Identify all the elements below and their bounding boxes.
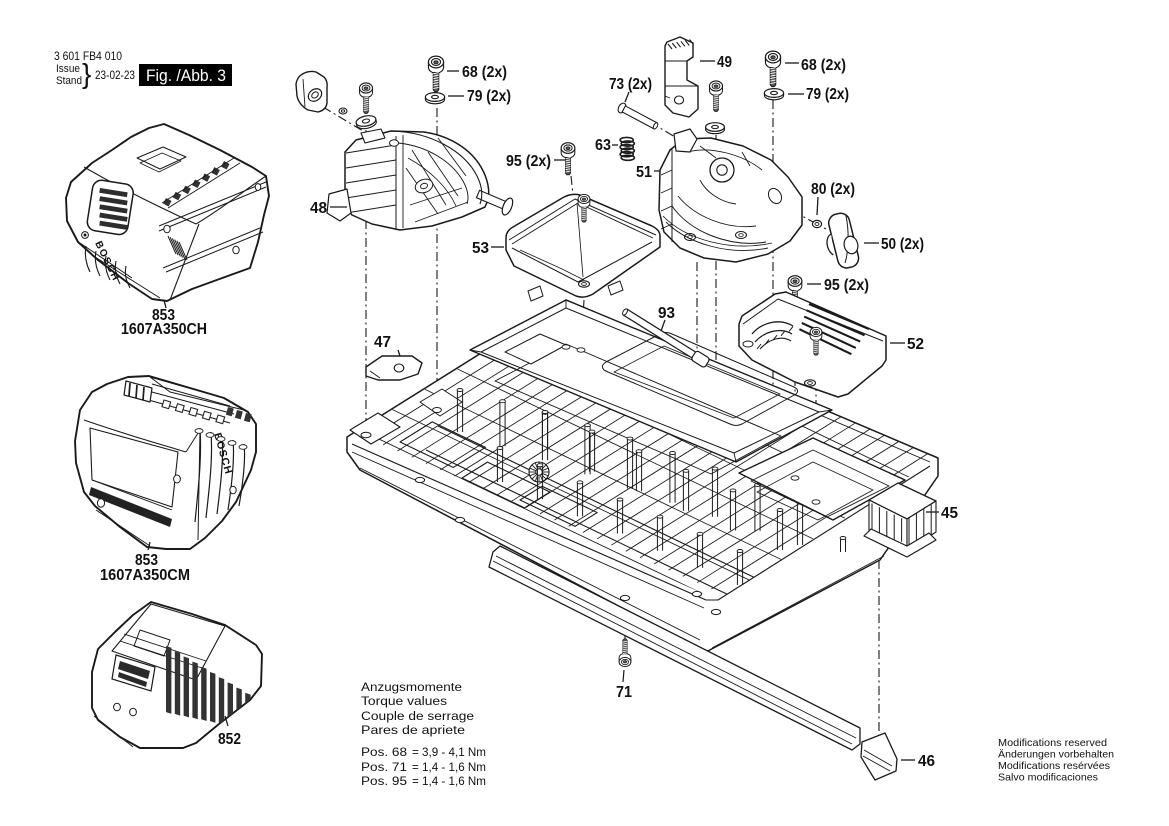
svg-text:= 3,9 - 4,1 Nm: = 3,9 - 4,1 Nm	[412, 745, 486, 759]
svg-text:1607A350CH: 1607A350CH	[121, 321, 207, 338]
svg-text:Modifications reserved: Modifications reserved	[998, 738, 1107, 749]
svg-text:73 (2x): 73 (2x)	[609, 76, 652, 93]
svg-text:49: 49	[717, 54, 732, 71]
svg-text:1607A350CM: 1607A350CM	[100, 567, 190, 584]
svg-text:93: 93	[658, 305, 675, 322]
svg-text:95 (2x): 95 (2x)	[824, 277, 869, 294]
svg-text:47: 47	[374, 334, 391, 351]
svg-text:Torque values: Torque values	[361, 694, 447, 708]
svg-text:95 (2x): 95 (2x)	[506, 153, 551, 170]
svg-text:79 (2x): 79 (2x)	[467, 88, 511, 105]
svg-text:= 1,4 - 1,6 Nm: = 1,4 - 1,6 Nm	[412, 760, 486, 774]
svg-text:50 (2x): 50 (2x)	[881, 236, 924, 253]
svg-text:Salvo modificaciones: Salvo modificaciones	[998, 773, 1098, 784]
svg-text:63: 63	[595, 137, 611, 154]
svg-text:53: 53	[472, 240, 489, 257]
svg-text:46: 46	[918, 753, 935, 770]
svg-text:Pos. 95: Pos. 95	[361, 774, 407, 788]
svg-text:Pos. 71: Pos. 71	[361, 760, 407, 774]
svg-text:Modifications resérvées: Modifications resérvées	[998, 761, 1110, 772]
svg-text:}: }	[82, 58, 91, 89]
svg-text:23-02-23: 23-02-23	[95, 68, 135, 82]
svg-text:= 1,4 - 1,6 Nm: = 1,4 - 1,6 Nm	[412, 774, 486, 788]
svg-text:Anzugsmomente: Anzugsmomente	[361, 680, 462, 694]
svg-text:Pos. 68: Pos. 68	[361, 745, 407, 759]
svg-text:71: 71	[616, 684, 632, 701]
svg-text:Änderungen vorbehalten: Änderungen vorbehalten	[998, 749, 1114, 761]
svg-text:Couple de serrage: Couple de serrage	[361, 709, 474, 723]
svg-text:51: 51	[636, 164, 652, 181]
svg-text:Stand: Stand	[56, 75, 82, 87]
svg-text:45: 45	[941, 505, 958, 522]
svg-text:68 (2x): 68 (2x)	[462, 64, 507, 81]
svg-text:Issue: Issue	[56, 63, 80, 75]
svg-text:52: 52	[907, 336, 924, 353]
svg-text:852: 852	[218, 731, 241, 748]
svg-text:80 (2x): 80 (2x)	[811, 181, 855, 198]
svg-text:79 (2x): 79 (2x)	[806, 86, 849, 103]
svg-text:Pares de apriete: Pares de apriete	[361, 723, 465, 737]
svg-text:48: 48	[310, 200, 327, 217]
svg-text:68 (2x): 68 (2x)	[801, 57, 846, 74]
svg-text:Fig. /Abb. 3: Fig. /Abb. 3	[146, 67, 226, 85]
